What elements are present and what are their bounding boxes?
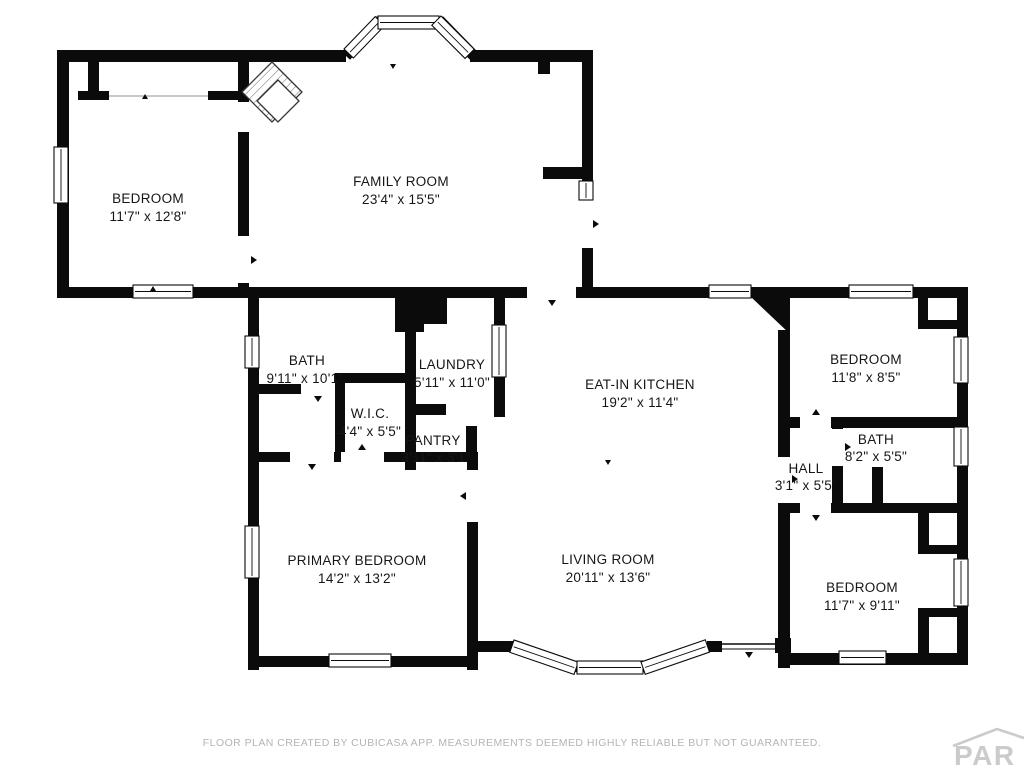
room-label-family-room: FAMILY ROOM 23'4" x 15'5" (353, 174, 449, 207)
room-label-living-room: LIVING ROOM 20'11" x 13'6" (561, 552, 654, 585)
floor-plan-page: BEDROOM 11'7" x 12'8" FAMILY ROOM 23'4" … (0, 0, 1024, 768)
svg-text:BEDROOM: BEDROOM (826, 580, 898, 595)
window (954, 427, 968, 466)
room-label-bedroom-bottom-right: BEDROOM 11'7" x 9'11" (824, 580, 900, 613)
svg-text:23'4" x 15'5": 23'4" x 15'5" (362, 192, 440, 207)
svg-text:3'11" x 3'1": 3'11" x 3'1" (401, 450, 470, 465)
window (579, 181, 593, 200)
door-openings-group (238, 102, 843, 522)
window (849, 285, 913, 298)
window (245, 336, 259, 368)
room-label-primary-bedroom: PRIMARY BEDROOM 14'2" x 13'2" (287, 553, 426, 586)
svg-text:11'7" x 12'8": 11'7" x 12'8" (110, 209, 187, 224)
window (378, 16, 439, 29)
window (577, 661, 643, 674)
svg-text:EAT-IN KITCHEN: EAT-IN KITCHEN (585, 377, 695, 392)
window (329, 654, 391, 667)
room-label-wic: W.I.C. 4'4" x 5'5" (339, 406, 401, 439)
svg-text:BEDROOM: BEDROOM (112, 191, 184, 206)
window (492, 325, 506, 377)
footer-disclaimer: FLOOR PLAN CREATED BY CUBICASA APP. MEAS… (0, 737, 1024, 749)
svg-text:PANTRY: PANTRY (405, 433, 460, 448)
room-label-eat-in-kitchen: EAT-IN KITCHEN 19'2" x 11'4" (585, 377, 695, 410)
windows-group (54, 16, 968, 674)
svg-text:20'11" x 13'6": 20'11" x 13'6" (566, 570, 651, 585)
svg-text:BATH: BATH (858, 432, 894, 447)
window (839, 651, 886, 664)
window (54, 147, 68, 203)
fireplace-icon (242, 62, 302, 122)
svg-text:BATH: BATH (289, 353, 325, 368)
walls-group (57, 22, 968, 670)
svg-text:3'1" x 5'5": 3'1" x 5'5" (775, 478, 837, 493)
svg-text:14'2" x 13'2": 14'2" x 13'2" (318, 571, 396, 586)
room-label-bedroom-top-left: BEDROOM 11'7" x 12'8" (110, 191, 187, 224)
room-label-bedroom-top-right: BEDROOM 11'8" x 8'5" (830, 352, 902, 385)
svg-text:PRIMARY BEDROOM: PRIMARY BEDROOM (287, 553, 426, 568)
svg-text:LIVING ROOM: LIVING ROOM (561, 552, 654, 567)
room-label-bath-left: BATH 9'11" x 10'1" (267, 353, 344, 386)
svg-text:8'2" x 5'5": 8'2" x 5'5" (845, 449, 907, 464)
svg-text:FAMILY ROOM: FAMILY ROOM (353, 174, 449, 189)
floor-plan-drawing: BEDROOM 11'7" x 12'8" FAMILY ROOM 23'4" … (0, 0, 1024, 768)
svg-text:LAUNDRY: LAUNDRY (419, 357, 485, 372)
window (510, 640, 579, 674)
svg-text:11'8" x 8'5": 11'8" x 8'5" (831, 370, 900, 385)
svg-text:19'2" x 11'4": 19'2" x 11'4" (602, 395, 679, 410)
svg-text:HALL: HALL (789, 461, 824, 476)
window (954, 559, 968, 606)
room-label-laundry: LAUNDRY 5'11" x 11'0" (414, 357, 490, 390)
sliding-door (722, 644, 775, 649)
svg-text:9'11" x 10'1": 9'11" x 10'1" (267, 371, 344, 386)
window (641, 640, 710, 674)
svg-text:W.I.C.: W.I.C. (351, 406, 390, 421)
logo-text: PAR (954, 740, 1016, 768)
window (432, 16, 474, 58)
window (954, 337, 968, 383)
window (709, 285, 751, 298)
par-logo: PAR (951, 725, 1024, 768)
svg-text:5'11" x 11'0": 5'11" x 11'0" (414, 375, 490, 390)
svg-text:4'4" x 5'5": 4'4" x 5'5" (339, 424, 401, 439)
room-label-bath-right: BATH 8'2" x 5'5" (845, 432, 907, 464)
svg-text:11'7" x 9'11": 11'7" x 9'11" (824, 598, 900, 613)
window (133, 285, 193, 298)
svg-text:BEDROOM: BEDROOM (830, 352, 902, 367)
window (245, 526, 259, 578)
